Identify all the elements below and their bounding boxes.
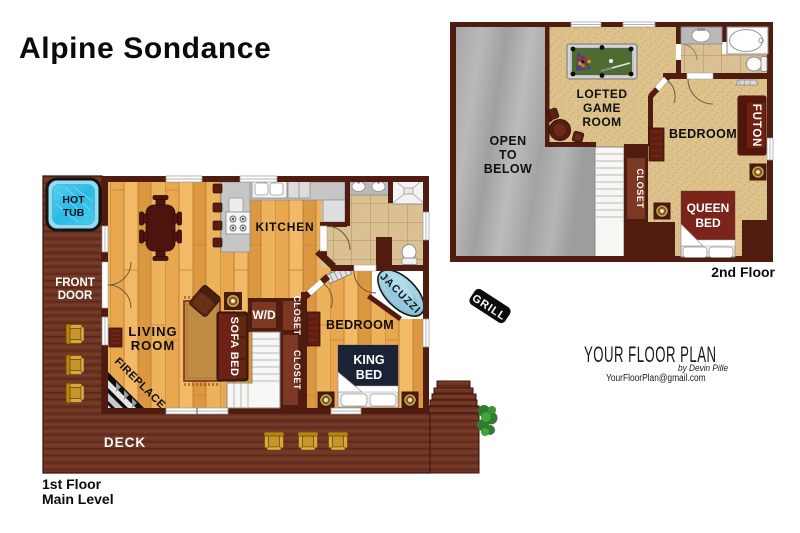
svg-text:CLOSET: CLOSET	[292, 295, 302, 335]
svg-text:Alpine Sondance: Alpine Sondance	[19, 32, 271, 65]
svg-text:GAME: GAME	[583, 101, 621, 115]
svg-text:OPEN: OPEN	[489, 134, 526, 148]
svg-text:SOFA BED: SOFA BED	[228, 317, 240, 377]
svg-text:TUB: TUB	[63, 207, 85, 219]
svg-text:TO: TO	[499, 148, 517, 162]
svg-text:BED: BED	[356, 368, 382, 382]
svg-text:ROOM: ROOM	[131, 338, 175, 353]
svg-text:Main Level: Main Level	[42, 491, 114, 507]
svg-text:YourFloorPlan@gmail.com: YourFloorPlan@gmail.com	[606, 372, 706, 384]
svg-text:ROOM: ROOM	[582, 115, 621, 129]
svg-text:DECK: DECK	[104, 435, 146, 450]
svg-text:KITCHEN: KITCHEN	[256, 220, 315, 234]
svg-text:FUTON: FUTON	[750, 104, 762, 147]
svg-text:CLOSET: CLOSET	[292, 350, 302, 390]
svg-text:QUEEN: QUEEN	[687, 201, 730, 215]
svg-text:1st Floor: 1st Floor	[42, 476, 102, 492]
svg-text:BEDROOM: BEDROOM	[326, 318, 394, 332]
svg-text:2nd Floor: 2nd Floor	[711, 264, 775, 280]
svg-text:DOOR: DOOR	[58, 290, 93, 302]
svg-text:FRONT: FRONT	[55, 277, 95, 289]
svg-text:LOFTED: LOFTED	[577, 87, 628, 101]
svg-text:BED: BED	[695, 216, 721, 230]
svg-text:BELOW: BELOW	[484, 162, 533, 176]
svg-text:BEDROOM: BEDROOM	[669, 127, 737, 141]
svg-text:HOT: HOT	[62, 194, 85, 206]
svg-text:W/D: W/D	[252, 308, 276, 322]
svg-text:KING: KING	[353, 353, 384, 367]
svg-text:CLOSET: CLOSET	[635, 168, 645, 208]
svg-text:LIVING: LIVING	[128, 324, 177, 339]
